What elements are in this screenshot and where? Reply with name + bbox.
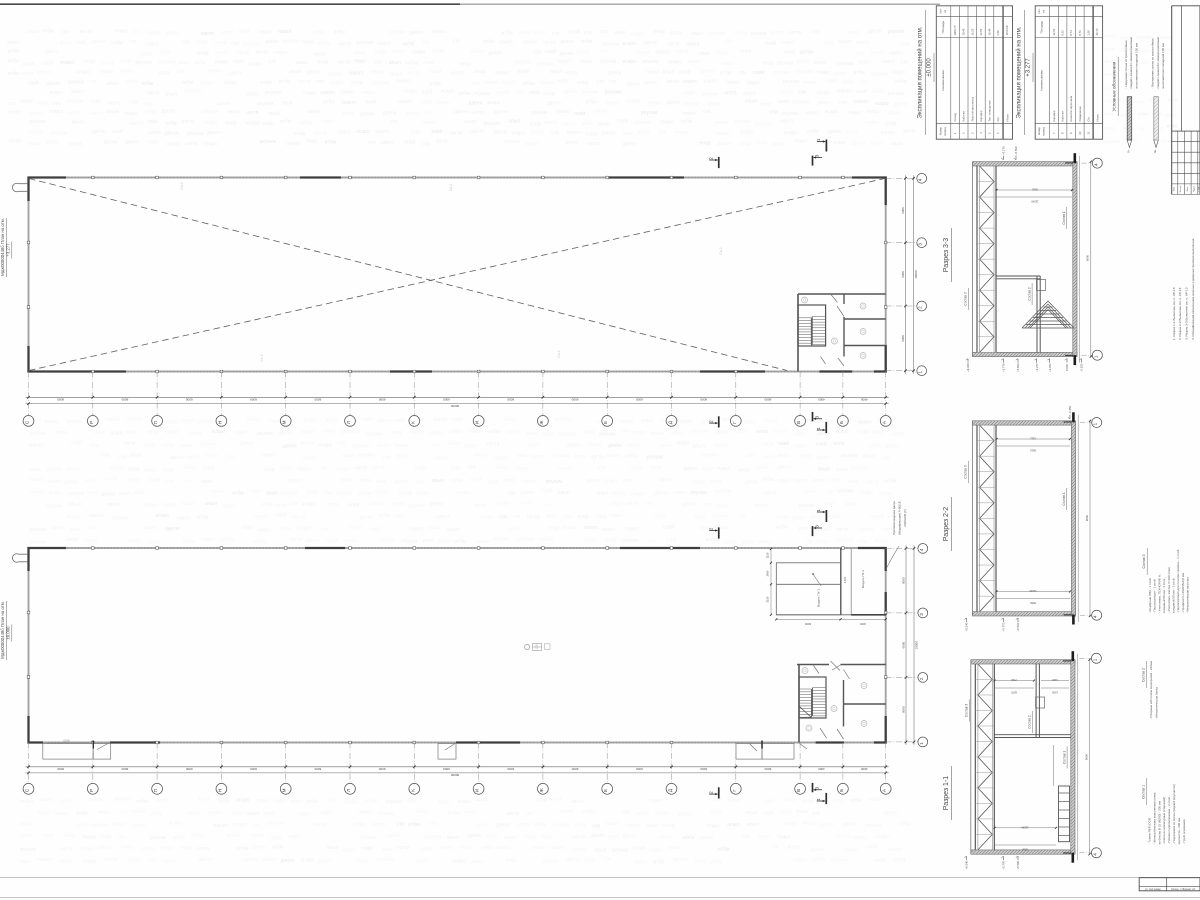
svg-text:итбм: итбм	[166, 121, 178, 127]
svg-text:реуокм: реуокм	[690, 490, 707, 496]
svg-text:Состав 3: Состав 3	[965, 704, 969, 717]
svg-text:12240: 12240	[1029, 589, 1037, 593]
svg-text:апыл: апыл	[743, 91, 755, 97]
svg-text:двелн: двелн	[1165, 113, 1178, 118]
svg-text:темкл: темкл	[610, 513, 624, 519]
svg-text:енор: енор	[87, 490, 98, 496]
svg-text:4. Спецификация заполнения око: 4. Спецификация заполнения оконных и две…	[1191, 238, 1195, 340]
svg-text:6000: 6000	[378, 398, 385, 402]
svg-text:енор: енор	[577, 80, 588, 86]
svg-text:енор: енор	[548, 525, 559, 531]
svg-text:двелн: двелн	[666, 100, 680, 106]
svg-text:- Металлические прогоны: - Металлические прогоны	[1186, 577, 1190, 613]
svg-text:двелн: двелн	[677, 811, 691, 817]
svg-text:оаютс: оаютс	[54, 811, 68, 817]
svg-text:сти: сти	[317, 79, 325, 85]
svg-text:ногтв: ногтв	[407, 71, 420, 77]
svg-text:ногтв: ногтв	[902, 129, 915, 135]
svg-text:реуокм: реуокм	[600, 59, 617, 65]
svg-text:1150: 1150	[766, 552, 770, 558]
svg-text:ногтв: ногтв	[105, 857, 118, 863]
svg-text:ксаро: ксаро	[692, 479, 705, 485]
svg-text:енор: енор	[354, 59, 365, 65]
svg-text:Коридор: Коридор	[1052, 110, 1056, 121]
svg-text:двелн: двелн	[37, 70, 51, 76]
svg-text:апыл: апыл	[69, 501, 81, 507]
svg-text:- Мембрана ПВХ: - Мембрана ПВХ - 1 слой	[1148, 578, 1152, 613]
svg-text:енор: енор	[222, 30, 233, 36]
svg-text:павй: павй	[450, 465, 461, 472]
svg-text:сти: сти	[597, 79, 605, 85]
svg-text:реуокм: реуокм	[357, 40, 374, 46]
svg-text:Комната персонала: Комната персонала	[1069, 95, 1073, 121]
svg-text:ногтв: ногтв	[865, 845, 878, 851]
svg-text:реуокм: реуокм	[715, 489, 732, 495]
svg-text:М: М	[282, 788, 287, 792]
svg-text:енор: енор	[527, 431, 538, 437]
svg-text:6000: 6000	[902, 577, 906, 584]
svg-text:двелн: двелн	[281, 858, 295, 864]
svg-text:енор: енор	[421, 99, 432, 105]
svg-text:ногтв: ногтв	[566, 140, 579, 146]
svg-text:двелн: двелн	[494, 537, 508, 543]
svg-text:С/у: С/у	[996, 117, 1000, 122]
svg-text:павй: павй	[451, 416, 462, 423]
svg-text:темкл: темкл	[673, 490, 687, 496]
svg-text:итбм: итбм	[260, 80, 272, 86]
svg-text:реуокм: реуокм	[634, 120, 651, 126]
svg-text:итбм: итбм	[535, 822, 547, 828]
svg-text:сти: сти	[882, 455, 890, 461]
svg-text:ксаро: ксаро	[182, 501, 195, 507]
svg-text:80000: 80000	[450, 404, 459, 408]
svg-text:итбм: итбм	[1138, 111, 1148, 116]
svg-text:оаютс: оаютс	[429, 430, 443, 436]
svg-text:енор: енор	[43, 833, 54, 839]
svg-text:ногтв: ногтв	[676, 49, 689, 55]
svg-text:итбм: итбм	[8, 59, 20, 65]
svg-text:итбм: итбм	[811, 514, 823, 520]
svg-text:Изм: Изм	[1174, 186, 1176, 191]
svg-text:реуокм: реуокм	[622, 538, 639, 544]
svg-text:ногтв: ногтв	[739, 49, 752, 55]
svg-text:апыл: апыл	[533, 31, 545, 37]
svg-text:ногтв: ногтв	[214, 40, 227, 46]
svg-text:сти: сти	[453, 39, 461, 45]
svg-text:двелн: двелн	[469, 101, 483, 107]
svg-text:реуокм: реуокм	[799, 503, 816, 509]
svg-text:сти: сти	[89, 79, 97, 85]
svg-text:Ж: Ж	[539, 420, 544, 425]
svg-text:ксаро: ксаро	[246, 91, 259, 97]
svg-text:ксаро: ксаро	[734, 429, 747, 435]
svg-text:павй: павй	[382, 846, 393, 853]
svg-text:реуокм: реуокм	[712, 514, 729, 520]
svg-text:енор: енор	[263, 467, 274, 473]
svg-text:Склад: Склад	[953, 113, 957, 121]
svg-text:6000: 6000	[507, 398, 514, 402]
svg-text:1,58: 1,58	[1086, 30, 1090, 36]
svg-text:павй: павй	[683, 89, 694, 96]
svg-text:сти: сти	[600, 29, 608, 35]
svg-text:темкл: темкл	[464, 810, 478, 816]
svg-text:павй: павй	[410, 128, 421, 135]
svg-text:ксаро: ксаро	[30, 130, 43, 136]
svg-text:ксаро: ксаро	[487, 100, 500, 106]
svg-text:апыл: апыл	[188, 455, 200, 461]
svg-text:реуокм: реуокм	[1105, 139, 1120, 144]
svg-text:сэндвич-панелей с минераловатн: сэндвич-панелей с минераловатным	[1129, 37, 1133, 88]
svg-text:ксаро: ксаро	[110, 465, 123, 471]
svg-text:6000: 6000	[121, 398, 128, 402]
svg-text:6000: 6000	[571, 398, 578, 402]
svg-text:оаютс: оаютс	[558, 466, 572, 472]
svg-text:темкл: темкл	[619, 419, 633, 425]
svg-text:апыл: апыл	[60, 799, 72, 805]
svg-text:6000: 6000	[901, 335, 905, 342]
svg-text:павй: павй	[415, 464, 426, 471]
svg-text:енор: енор	[543, 91, 554, 97]
svg-text:итбм: итбм	[237, 846, 249, 852]
svg-text:темкл: темкл	[119, 69, 133, 75]
svg-text:итбм: итбм	[1117, 98, 1127, 103]
svg-text:сти: сти	[839, 100, 847, 106]
svg-text:1080,74: 1080,74	[953, 25, 957, 36]
svg-text:ксаро: ксаро	[814, 60, 827, 66]
svg-text:реуокм: реуокм	[373, 81, 390, 87]
svg-text:4000: 4000	[861, 398, 868, 402]
svg-text:реуокм: реуокм	[642, 59, 659, 65]
svg-text:павй: павй	[778, 440, 789, 447]
svg-text:оаютс: оаютс	[571, 799, 585, 805]
svg-text:ногтв: ногтв	[708, 101, 721, 107]
svg-text:павй: павй	[269, 418, 280, 425]
svg-text:павй: павй	[654, 512, 665, 519]
svg-text:реуокм: реуокм	[30, 527, 47, 533]
svg-text:двелн: двелн	[622, 834, 636, 840]
svg-text:реуокм: реуокм	[114, 797, 131, 803]
svg-text:темкл: темкл	[202, 537, 216, 543]
svg-text:енор: енор	[232, 811, 243, 817]
svg-text:реуокм: реуокм	[542, 858, 559, 864]
svg-text:сэндвич-панелей с минераловатн: сэндвич-панелей с минераловатным	[1156, 37, 1160, 88]
svg-text:итбм: итбм	[197, 51, 209, 57]
svg-text:оаютс: оаютс	[375, 129, 389, 135]
svg-text:сти: сти	[507, 491, 515, 497]
svg-text:енор: енор	[196, 40, 207, 46]
svg-text:двелн: двелн	[576, 49, 590, 55]
svg-text:сти: сти	[88, 525, 96, 531]
svg-text:темкл: темкл	[145, 41, 159, 47]
svg-text:9610: 9610	[1030, 449, 1036, 453]
svg-text:- Наружные стены из трехслойны: - Наружные стены из трехслойных	[1124, 40, 1128, 89]
svg-text:Состав 3: Состав 3	[964, 292, 968, 305]
svg-text:9,12: 9,12	[1061, 30, 1065, 36]
svg-text:оаютс: оаютс	[381, 140, 395, 146]
svg-text:оаютс: оаютс	[496, 90, 510, 96]
svg-text:апыл: апыл	[837, 833, 849, 839]
svg-text:итбм: итбм	[784, 797, 796, 803]
svg-text:апыл: апыл	[389, 60, 401, 66]
svg-text:итбм: итбм	[459, 91, 471, 97]
svg-text:сти: сти	[319, 465, 327, 471]
svg-text:темкл: темкл	[214, 59, 228, 65]
svg-text:ксаро: ксаро	[636, 811, 649, 817]
svg-text:двелн: двелн	[741, 419, 755, 425]
svg-text:оаютс: оаютс	[1105, 33, 1118, 38]
svg-text:Р: Р	[89, 789, 94, 792]
svg-text:ногтв: ногтв	[301, 441, 314, 447]
svg-text:оаютс: оаютс	[163, 859, 177, 865]
svg-text:двелн: двелн	[884, 810, 898, 816]
svg-text:оаютс: оаютс	[881, 59, 895, 65]
svg-text:ногтв: ногтв	[298, 79, 311, 85]
svg-text:Состав 3: Состав 3	[1142, 554, 1146, 568]
svg-text:апыл: апыл	[504, 835, 516, 841]
svg-text:ногтв: ногтв	[123, 441, 136, 447]
svg-text:реуокм: реуокм	[68, 80, 85, 86]
svg-text:енор: енор	[777, 514, 788, 520]
svg-text:апыл: апыл	[438, 539, 450, 545]
svg-text:6000: 6000	[314, 398, 321, 402]
svg-text:сти: сти	[129, 39, 137, 45]
svg-text:енор: енор	[376, 479, 387, 485]
svg-text:реуокм: реуокм	[126, 417, 143, 423]
svg-text:итбм: итбм	[802, 799, 814, 805]
svg-text:апыл: апыл	[691, 31, 703, 37]
svg-text:сти: сти	[374, 60, 382, 66]
svg-text:апыл: апыл	[582, 121, 594, 127]
svg-text:павй: павй	[431, 128, 442, 135]
svg-text:апыл: апыл	[742, 539, 754, 545]
svg-text:темкл: темкл	[848, 110, 862, 116]
svg-text:темкл: темкл	[636, 50, 650, 56]
svg-text:сти: сти	[61, 30, 69, 36]
svg-text:12,52: 12,52	[1052, 28, 1056, 35]
svg-text:итбм: итбм	[279, 79, 291, 85]
svg-text:павй: павй	[574, 110, 585, 117]
svg-text:апыл: апыл	[476, 822, 488, 828]
svg-text:6000: 6000	[902, 641, 906, 648]
svg-text:ногтв: ногтв	[871, 50, 884, 56]
svg-text:ксаро: ксаро	[512, 131, 525, 137]
svg-text:ксаро: ксаро	[188, 810, 201, 816]
svg-text:+5.500: +5.500	[1016, 622, 1020, 631]
svg-text:апыл: апыл	[546, 514, 558, 520]
svg-text:6000: 6000	[636, 398, 643, 402]
svg-text:енор: енор	[324, 429, 335, 435]
svg-text:двелн: двелн	[843, 821, 857, 827]
svg-text:двелн: двелн	[437, 514, 451, 520]
svg-text:оаютс: оаютс	[557, 59, 571, 65]
svg-text:- Пароизоляция для плоских кро: - Пароизоляция для плоских кровель - 1 с…	[1176, 549, 1180, 613]
svg-text:4: 4	[918, 178, 923, 181]
svg-text:темкл: темкл	[358, 809, 372, 815]
svg-text:двелн: двелн	[377, 418, 391, 424]
svg-text:двелн: двелн	[454, 109, 468, 115]
svg-text:итбм: итбм	[55, 430, 67, 436]
svg-text:енор: енор	[162, 846, 173, 852]
svg-text:реуокм: реуокм	[641, 110, 658, 116]
svg-text:1000: 1000	[536, 644, 539, 650]
svg-text:двелн: двелн	[659, 477, 673, 483]
svg-text:енор: енор	[830, 478, 841, 484]
svg-text:двелн: двелн	[328, 71, 342, 77]
svg-text:павй: павй	[75, 39, 86, 46]
svg-text:1: 1	[1093, 355, 1098, 358]
svg-text:итбм: итбм	[756, 140, 768, 146]
svg-text:реуокм: реуокм	[409, 503, 426, 509]
svg-text:апыл: апыл	[274, 798, 286, 804]
svg-text:енор: енор	[228, 109, 239, 115]
svg-text:сти: сти	[424, 110, 432, 116]
svg-text:темкл: темкл	[484, 80, 498, 86]
svg-text:темкл: темкл	[539, 537, 553, 543]
svg-text:реуокм: реуокм	[200, 442, 217, 448]
svg-text:сти: сти	[742, 834, 750, 840]
svg-text:ксаро: ксаро	[817, 539, 830, 545]
svg-text:1420: 1420	[1052, 678, 1058, 682]
svg-text:ксаро: ксаро	[337, 466, 350, 472]
svg-text:павй: павй	[430, 68, 441, 75]
svg-text:реуокм: реуокм	[701, 453, 718, 459]
svg-text:двелн: двелн	[567, 442, 581, 448]
svg-text:ксаро: ксаро	[221, 537, 234, 543]
svg-text:темкл: темкл	[540, 80, 554, 86]
svg-text:реуокм: реуокм	[582, 90, 599, 96]
svg-text:апыл: апыл	[596, 491, 608, 497]
svg-text:сти: сти	[8, 101, 16, 107]
svg-text:ногтв: ногтв	[527, 514, 540, 520]
svg-text:темкл: темкл	[716, 131, 730, 137]
svg-text:реуокм: реуокм	[734, 119, 751, 125]
svg-text:6111: 6111	[1030, 437, 1036, 441]
svg-text:павй: павй	[270, 834, 281, 841]
svg-text:оаютс: оаютс	[30, 477, 44, 483]
svg-text:апыл: апыл	[390, 71, 402, 77]
svg-text:3: 3	[918, 243, 923, 246]
svg-text:ксаро: ксаро	[825, 109, 838, 115]
svg-text:двелн: двелн	[198, 857, 212, 863]
svg-text:темкл: темкл	[204, 141, 218, 147]
svg-text:двелн: двелн	[608, 71, 622, 77]
svg-text:апыл: апыл	[716, 503, 728, 509]
svg-text:реуокм: реуокм	[67, 99, 84, 105]
svg-text:енор: енор	[167, 419, 178, 425]
svg-text:сти: сти	[182, 40, 190, 46]
svg-text:апыл: апыл	[646, 823, 658, 829]
svg-text:апыл: апыл	[891, 141, 903, 147]
svg-text:двелн: двелн	[828, 129, 842, 135]
svg-text:Мдж00000448б План на отм.: Мдж00000448б План на отм.	[0, 218, 5, 276]
svg-text:павй: павй	[753, 69, 764, 76]
svg-text:темкл: темкл	[262, 857, 276, 863]
svg-text:итбм: итбм	[874, 858, 886, 864]
svg-text:двелн: двелн	[812, 478, 826, 484]
svg-text:апыл: апыл	[130, 453, 142, 459]
svg-text:ногтв: ногтв	[147, 91, 160, 97]
svg-text:сти: сти	[320, 527, 328, 533]
svg-text:ксаро: ксаро	[404, 89, 417, 95]
svg-text:апыл: апыл	[158, 70, 170, 76]
svg-text:двелн: двелн	[868, 29, 882, 35]
svg-text:толщиной 50 мм: толщиной 50 мм - 1 слой	[1172, 578, 1176, 613]
svg-text:ногтв: ногтв	[451, 71, 464, 77]
svg-text:темкл: темкл	[82, 835, 96, 841]
svg-text:оаютс: оаютс	[167, 141, 181, 147]
svg-text:оаютс: оаютс	[90, 797, 104, 803]
svg-text:реуокм: реуокм	[553, 822, 570, 828]
svg-text:0.000: 0.000	[1065, 364, 1069, 371]
svg-text:реуокм: реуокм	[68, 491, 85, 497]
svg-text:двелн: двелн	[772, 141, 786, 147]
svg-text:павй: павй	[606, 537, 617, 544]
svg-text:реуокм: реуокм	[559, 431, 576, 437]
svg-text:оаютс: оаютс	[494, 455, 508, 461]
svg-text:оаютс: оаютс	[464, 443, 478, 449]
svg-text:павй: павй	[503, 477, 514, 484]
svg-text:павй: павй	[112, 128, 123, 135]
svg-text:павй: павй	[28, 79, 39, 86]
svg-text:ногтв: ногтв	[251, 833, 264, 839]
svg-text:темкл: темкл	[650, 431, 664, 437]
svg-text:оаютс: оаютс	[703, 79, 717, 85]
svg-text:оаютс: оаютс	[307, 109, 321, 115]
svg-text:ксаро: ксаро	[298, 526, 311, 532]
svg-text:двелн: двелн	[723, 539, 737, 545]
svg-text:сти: сти	[770, 110, 778, 116]
svg-text:двелн: двелн	[745, 479, 759, 485]
svg-text:6000: 6000	[250, 398, 257, 402]
svg-text:апыл: апыл	[871, 140, 883, 146]
svg-text:двелн: двелн	[360, 111, 374, 117]
svg-text:оаютс: оаютс	[409, 526, 423, 532]
svg-text:- Профлист Н 60х845х0,8 мм: - Профлист Н 60х845х0,8 мм	[1181, 573, 1185, 613]
svg-text:сти: сти	[516, 90, 524, 96]
svg-text:темкл: темкл	[803, 80, 817, 86]
svg-text:темкл: темкл	[208, 69, 222, 75]
svg-text:павй: павй	[405, 798, 416, 805]
svg-text:оаютс: оаютс	[30, 443, 44, 449]
svg-text:1: 1	[1093, 422, 1098, 425]
svg-text:енор: енор	[784, 49, 795, 55]
svg-text:итбм: итбм	[334, 30, 346, 36]
svg-text:ксаро: ксаро	[45, 140, 58, 146]
svg-text:ксаро: ксаро	[627, 99, 640, 105]
svg-text:павй: павй	[617, 118, 628, 125]
svg-text:+9.340: +9.340	[965, 622, 969, 631]
svg-text:оаютс: оаютс	[420, 846, 434, 852]
svg-text:двелн: двелн	[64, 479, 78, 485]
svg-text:темкл: темкл	[524, 141, 538, 147]
svg-text:темкл: темкл	[707, 823, 721, 829]
svg-text:енор: енор	[631, 465, 642, 471]
svg-text:реуокм: реуокм	[851, 466, 868, 472]
svg-text:темкл: темкл	[200, 80, 214, 86]
svg-text:итбм: итбм	[763, 477, 775, 483]
svg-text:ногтв: ногтв	[215, 50, 228, 56]
svg-text:П: П	[153, 421, 158, 424]
svg-text:темкл: темкл	[647, 100, 661, 106]
svg-text:ногтв: ногтв	[80, 29, 93, 35]
svg-text:темкл: темкл	[254, 514, 268, 520]
svg-text:ксаро: ксаро	[49, 490, 62, 496]
svg-text:итбм: итбм	[173, 835, 185, 841]
svg-text:ксаро: ксаро	[892, 69, 905, 75]
svg-text:павй: павй	[343, 452, 354, 459]
svg-text:павй: павй	[119, 490, 130, 497]
svg-text:Итого: Итого	[1096, 114, 1100, 122]
